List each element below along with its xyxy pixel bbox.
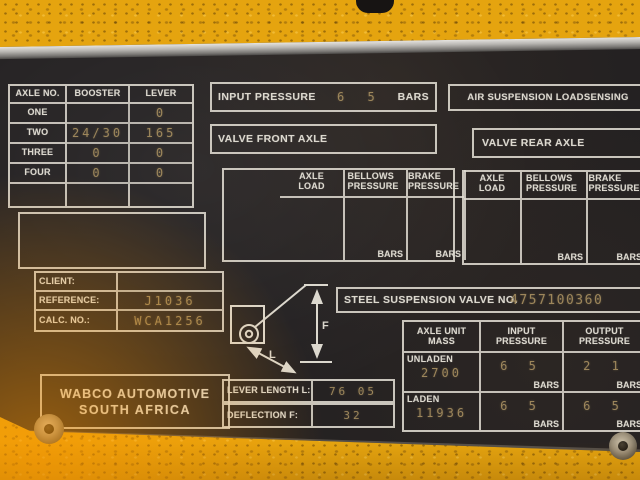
axle-row-lever-value: 0 [130,104,192,124]
rear-bellows-cell: BARS [522,200,588,263]
steel-suspension-valve-box: STEEL SUSPENSION VALVE NO. 4757100360 [336,287,640,313]
laden-output-value: 6 5 [564,399,640,413]
axle-row-name: THREE [10,144,67,164]
calc-no-label: CALC. NO.: [36,311,118,330]
empty-cell [67,184,130,206]
lever-l-label: L [269,349,276,361]
rivet-hole [44,424,54,434]
lever-length-label: LEVER LENGTH L: [224,381,313,401]
unladen-output-unit: BARS [616,380,640,390]
unladen-input-unit: BARS [533,380,559,390]
steel-suspension-valve-label: STEEL SUSPENSION VALVE NO. [344,294,518,306]
reference-value: J1036 [118,292,222,311]
input-pressure-header: INPUT PRESSURE [481,322,564,353]
front-bellows-unit: BARS [377,249,403,259]
laden-mass-value: 11936 [404,406,479,420]
air-suspension-box: AIR SUSPENSION LOADSENSING [448,84,640,111]
lever-length-value: 76 05 [313,381,393,401]
lever-diagram: F L [222,272,350,378]
unladen-mass-cell: UNLADEN 2700 [404,353,481,393]
reference-label: REFERENCE: [36,292,118,311]
unladen-input-value: 6 5 [481,359,562,373]
input-pressure-label: INPUT PRESSURE [218,91,316,103]
axle-row-lever-value: 0 [130,164,192,184]
front-brake-unit: BARS [435,249,461,259]
rear-brake-header: BRAKE PRESSURE [588,172,640,200]
axle-row-lever-value: 165 [130,124,192,144]
valve-rear-axle-label: VALVE REAR AXLE [474,137,585,149]
axle-row-name: TWO [10,124,67,144]
output-pressure-header: OUTPUT PRESSURE [564,322,640,353]
rear-brake-cell: BARS [588,200,640,263]
rear-bellows-unit: BARS [557,252,583,262]
front-axle-load-cell [280,198,345,260]
air-suspension-label: AIR SUSPENSION LOADSENSING [467,92,628,103]
calc-no-value: WCA1256 [118,311,222,330]
deflection-f-label: F [322,320,329,332]
axle-row-booster-value: 0 [67,164,130,184]
unladen-input-cell: 6 5 BARS [481,353,564,393]
front-axle-pressure-table: AXLE LOAD BELLOWS PRESSURE BRAKE PRESSUR… [222,168,455,262]
laden-output-unit: BARS [616,419,640,429]
front-axle-load-header: AXLE LOAD [280,170,345,198]
axle-row-name: ONE [10,104,67,124]
rivet-bottom-right [609,432,637,460]
axle-row-booster-value: 0 [67,144,130,164]
front-extra-column [224,170,280,260]
axle-row-name: FOUR [10,164,67,184]
laden-label: LADEN [407,394,440,404]
paint-blemish [356,0,394,13]
wabco-data-plate: AXLE NO. BOOSTER LEVER ONE 0 TWO 24/30 1… [0,0,640,480]
col-header-lever: LEVER [130,86,192,104]
lever-length-box: LEVER LENGTH L: 76 05 [222,379,395,403]
unladen-output-value: 2 1 [564,359,640,373]
unladen-output-cell: 2 1 BARS [564,353,640,393]
front-bellows-header: BELLOWS PRESSURE [345,170,408,198]
empty-cell [10,184,67,206]
deflection-label: DEFLECTION F: [224,405,313,426]
client-value [118,273,222,292]
photo-of-data-plate: AXLE NO. BOOSTER LEVER ONE 0 TWO 24/30 1… [0,0,640,480]
input-pressure-unit: BARS [398,91,429,103]
front-brake-cell: BARS [408,198,466,260]
mass-header: AXLE UNIT MASS [404,322,481,353]
manufacturer-country: SOUTH AFRICA [79,403,191,417]
deflection-value: 32 [313,405,393,426]
deflection-box: DEFLECTION F: 32 [222,403,395,428]
laden-input-value: 6 5 [481,399,562,413]
unladen-label: UNLADEN [407,354,453,364]
rivet-hole [618,441,628,451]
client-label: CLIENT: [36,273,118,292]
front-bellows-cell: BARS [345,198,408,260]
laden-input-cell: 6 5 BARS [481,393,564,430]
rear-brake-unit: BARS [616,252,640,262]
axle-booster-lever-table: AXLE NO. BOOSTER LEVER ONE 0 TWO 24/30 1… [8,84,194,208]
steel-suspension-valve-number: 4757100360 [510,293,603,308]
rivet-bottom-left [34,414,64,444]
col-header-axle-no: AXLE NO. [10,86,67,104]
pivot-circle [240,325,258,343]
manufacturer-box: WABCO AUTOMOTIVE SOUTH AFRICA [40,374,230,429]
axle-row-lever-value: 0 [130,144,192,164]
laden-output-cell: 6 5 BARS [564,393,640,430]
valve-front-axle-label: VALVE FRONT AXLE [212,133,327,145]
input-pressure-value: 6 5 [337,90,383,104]
valve-front-axle-box: VALVE FRONT AXLE [210,124,437,154]
unladen-mass-value: 2700 [404,366,479,380]
manufacturer-name: WABCO AUTOMOTIVE [60,387,210,401]
valve-rear-axle-box: VALVE REAR AXLE [472,128,640,158]
axle-unit-mass-table: AXLE UNIT MASS INPUT PRESSURE OUTPUT PRE… [402,320,640,432]
col-header-booster: BOOSTER [67,86,130,104]
front-brake-header: BRAKE PRESSURE [408,170,466,198]
empty-cell [130,184,192,206]
laden-mass-cell: LADEN 11936 [404,393,481,430]
rear-axle-load-cell [464,200,522,263]
pivot-center-dot [246,331,252,337]
axle-row-booster-value [67,104,130,124]
input-pressure-box: INPUT PRESSURE 6 5 BARS [210,82,437,112]
client-reference-table: CLIENT: REFERENCE: J1036 CALC. NO.: WCA1… [34,271,224,332]
laden-input-unit: BARS [533,419,559,429]
axle-row-booster-value: 24/30 [67,124,130,144]
rear-bellows-header: BELLOWS PRESSURE [522,172,588,200]
rear-axle-pressure-table: AXLE LOAD BELLOWS PRESSURE BRAKE PRESSUR… [462,170,640,265]
rear-axle-load-header: AXLE LOAD [464,172,522,200]
blank-panel-box [18,212,206,269]
